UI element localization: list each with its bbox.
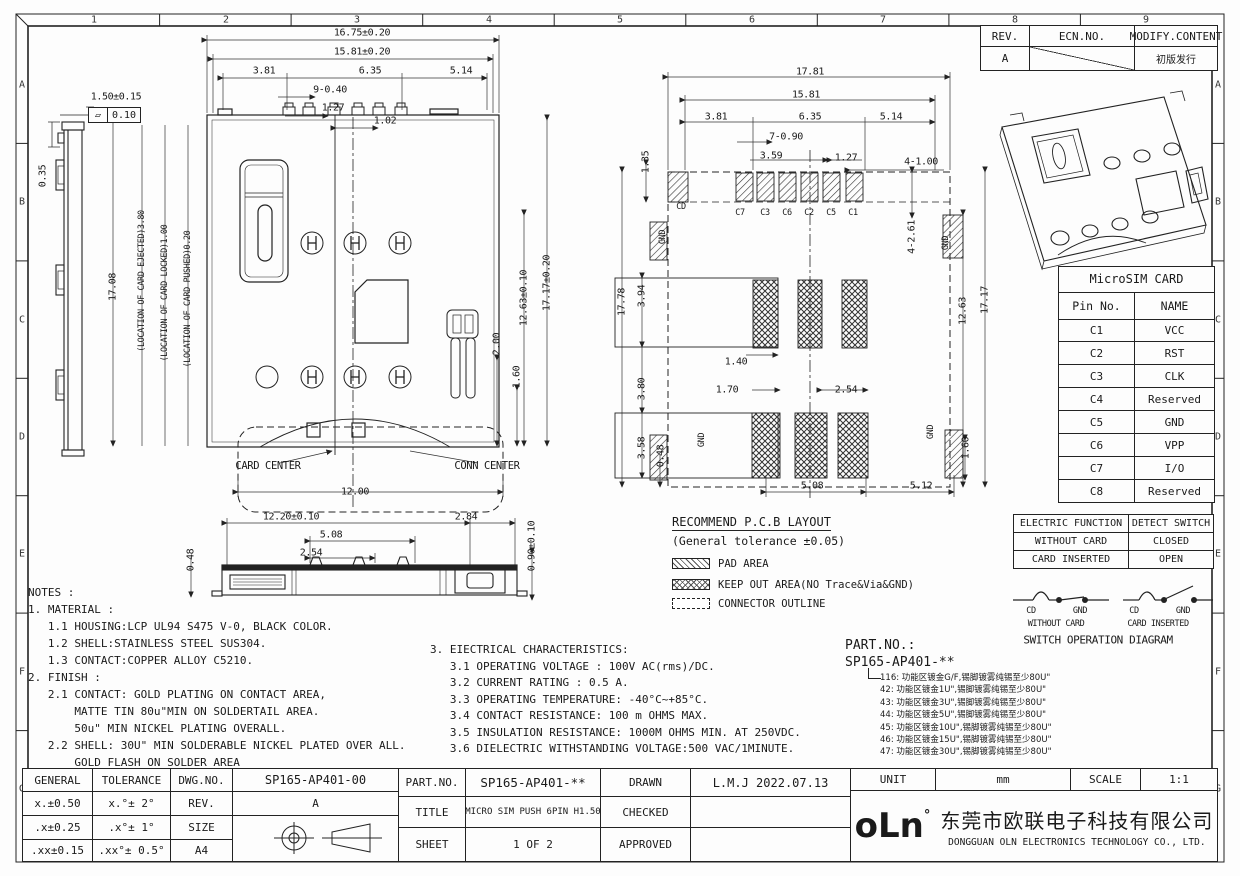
frame-row-label: F	[19, 667, 25, 678]
tb-tolerance-header: TOLERANCE	[92, 768, 171, 792]
dim-pcb-508: 5.08	[801, 481, 823, 492]
plating-option: 45: 功能区镀金10U",锡脚镀雾纯锡至少80U"	[880, 722, 1051, 734]
dim-pcb-1581: 15.81	[792, 90, 820, 101]
note-line: 1.1 HOUSING:LCP UL94 S475 V-0, BLACK COL…	[28, 618, 406, 635]
frame-col-label: 6	[749, 15, 755, 26]
dim-pcb-512: 5.12	[910, 481, 932, 492]
pad-area-label: PAD AREA	[718, 558, 769, 570]
dim-pcb-160: 1.60	[961, 437, 972, 459]
pad-label-c5: C5	[826, 208, 835, 218]
dim-pin-width: 9-0.40	[313, 85, 347, 96]
note-line: NOTES :	[28, 584, 406, 601]
notes-block: NOTES : 1. MATERIAL : 1.1 HOUSING:LCP UL…	[28, 584, 406, 771]
dim-pcb-140: 1.40	[725, 357, 747, 368]
pcb-layout-title: RECOMMEND P.C.B LAYOUT	[672, 515, 831, 531]
tb-title-value: MICRO SIM PUSH 6PIN H1.50	[465, 796, 601, 828]
name-cell: Reserved	[1135, 480, 1214, 502]
tb-scale-label: SCALE	[1070, 768, 1141, 791]
dim-1220: 12.20±0.10	[263, 512, 319, 523]
name-cell: VCC	[1135, 320, 1214, 342]
electric-function-header: ELECTRIC FUNCTION	[1013, 514, 1129, 533]
name-cell: GND	[1135, 411, 1214, 433]
frame-row-label: C	[19, 315, 25, 326]
engineering-drawing-page: 1 2 3 4 5 6 7 8 9 1 2 3 4 5 6 7 8 9 A B …	[0, 0, 1240, 876]
frame-row-label: E	[19, 549, 25, 560]
note-line: 1.3 CONTACT:COPPER ALLOY C5210.	[28, 652, 406, 669]
connector-outline-swatch	[672, 598, 710, 609]
tb-sheet-value: 1 OF 2	[465, 827, 601, 862]
frame-col-label: 7	[880, 15, 886, 26]
oln-logo: oLn°	[855, 809, 931, 843]
pad-label-gnd-bottomright: GND	[926, 425, 936, 439]
switch-card-inserted-label: CARD INSERTED	[1127, 619, 1188, 629]
electrical-line: 3.5 INSULATION RESISTANCE: 1000M OHMS MI…	[430, 725, 801, 742]
dim-508-bottom: 5.08	[320, 530, 342, 541]
dim-127: 1.27	[322, 103, 344, 114]
pin-cell: C2	[1059, 342, 1135, 364]
without-card-cell: WITHOUT CARD	[1013, 532, 1129, 551]
pad-label-c6: C6	[782, 208, 791, 218]
revision-ecn-diagonal	[1029, 46, 1135, 71]
frame-row-label: C	[1215, 315, 1221, 326]
electrical-characteristics-block: 3. EIECTRICAL CHARACTERISTICS: 3.1 OPERA…	[430, 642, 801, 758]
plating-option: 43: 功能区镀金3U",锡脚镀雾纯锡至少80U"	[880, 697, 1051, 709]
tb-dwgno-value: SP165-AP401-00	[232, 768, 399, 792]
dim-048-bottom: 0.48	[186, 549, 197, 571]
table-row: C5GND	[1059, 411, 1214, 434]
tb-general-header: GENERAL	[22, 768, 93, 792]
electrical-line: 3.2 CURRENT RATING : 0.5 A.	[430, 675, 801, 692]
dim-pitch-635: 6.35	[359, 66, 381, 77]
table-row: C2RST	[1059, 342, 1214, 365]
revision-header-rev: REV.	[980, 25, 1030, 47]
tb-dwgno-label: DWG.NO.	[170, 768, 233, 792]
dim-102: 1.02	[374, 116, 396, 127]
closed-cell: CLOSED	[1128, 532, 1214, 551]
dim-pcb-170: 1.70	[716, 385, 738, 396]
tb-projection-cell	[232, 815, 399, 862]
frame-col-label: 8	[1012, 15, 1018, 26]
dim-shell-width: 15.81±0.20	[334, 47, 390, 58]
pin-cell: C3	[1059, 365, 1135, 387]
note-line: 2.2 SHELL: 30U" MIN SOLDERABLE NICKEL PL…	[28, 737, 406, 754]
frame-row-label: B	[19, 197, 25, 208]
frame-row-label: A	[19, 80, 25, 91]
dim-pcb-048: 0.48	[656, 445, 667, 467]
pad-label-c7: C7	[735, 208, 744, 218]
company-name-en: DONGGUAN OLN ELECTRONICS TECHNOLOGY CO.,…	[948, 837, 1205, 848]
pin-cell: C8	[1059, 480, 1135, 502]
logo-degree-mark: °	[924, 808, 931, 823]
plating-option: 42: 功能区镀金1U",锡脚镀雾纯锡至少80U"	[880, 684, 1051, 696]
dim-pcb-359: 3.59	[760, 151, 782, 162]
pin-cell: C7	[1059, 457, 1135, 479]
microsim-pin-table: MicroSIM CARD Pin No. NAME C1VCC C2RST C…	[1058, 266, 1215, 503]
keepout-area-swatch	[672, 579, 710, 590]
switch-gnd2-label: GND	[1176, 606, 1190, 616]
pad-area-swatch	[672, 558, 710, 569]
frame-col-label: 9	[1143, 15, 1149, 26]
note-line: 50u" MIN NICKEL PLATING OVERALL.	[28, 720, 406, 737]
pad-label-gnd-topleft: GND	[658, 230, 668, 244]
dim-pcb-135: 1.35	[641, 151, 652, 173]
tb-company-cell: oLn° 东莞市欧联电子科技有限公司 DONGGUAN OLN ELECTRON…	[850, 790, 1218, 862]
tb-approved-label: APPROVED	[600, 827, 691, 862]
pad-label-gnd-topright: GND	[941, 236, 951, 250]
pad-label-gnd-bottomleft: GND	[697, 433, 707, 447]
plating-option: 44: 功能区镀金5U",锡脚镀雾纯锡至少80U"	[880, 709, 1051, 721]
frame-row-label: D	[19, 432, 25, 443]
switch-cd2-label: CD	[1129, 606, 1138, 616]
dim-pitch-381: 3.81	[253, 66, 275, 77]
dim-pcb-1778: 17.78	[617, 288, 628, 316]
open-cell: OPEN	[1128, 550, 1214, 569]
pad-label-c1: C1	[848, 208, 857, 218]
card-center-label: CARD CENTER	[235, 460, 300, 472]
conn-center-label: CONN CENTER	[454, 460, 519, 472]
dim-pcb-127: 1.27	[835, 153, 857, 164]
table-row: C8Reserved	[1059, 480, 1214, 502]
flatness-symbol: ▱	[88, 107, 108, 123]
dim-1708: 17.08	[108, 273, 119, 301]
tb-size-value: A4	[170, 839, 233, 862]
dim-200: 2.00	[492, 333, 503, 355]
dim-location-ejected: (LOCATION OF CARD EJECTED)3.80	[137, 210, 147, 352]
note-line: 2.1 CONTACT: GOLD PLATING ON CONTACT ARE…	[28, 686, 406, 703]
dim-height-150: 1.50±0.15	[91, 92, 142, 103]
tb-title-label: TITLE	[398, 796, 466, 828]
pad-label-cd: CD	[676, 202, 685, 212]
dim-location-pushed: (LOCATION OF CARD PUSHED)0.20	[183, 231, 193, 368]
tb-tol-r2c2: .x°± 1°	[92, 815, 171, 840]
dim-pcb-1717: 17.17	[980, 286, 991, 314]
revision-header-ecn: ECN.NO.	[1029, 25, 1135, 47]
frame-row-label: D	[1215, 432, 1221, 443]
tb-tol-r1c1: x.±0.50	[22, 791, 93, 816]
tb-unit-label: UNIT	[850, 768, 936, 791]
dim-090: 0.90±0.10	[527, 521, 538, 572]
note-line: 1.2 SHELL:STAINLESS STEEL SUS304.	[28, 635, 406, 652]
tb-partno-value: SP165-AP401-**	[465, 768, 601, 797]
tb-drawn-label: DRAWN	[600, 768, 691, 797]
plating-option: 46: 功能区镀金15U",锡脚镀雾纯锡至少80U"	[880, 734, 1051, 746]
dim-1200: 12.00	[341, 487, 369, 498]
frame-col-label: 5	[617, 15, 623, 26]
note-line: MATTE TIN 80u"MIN ON SOLDERTAIL AREA.	[28, 703, 406, 720]
pad-label-c3: C3	[760, 208, 769, 218]
dim-035: 0.35	[38, 165, 49, 187]
table-row: C3CLK	[1059, 365, 1214, 388]
name-cell: I/O	[1135, 457, 1214, 479]
tb-scale-value: 1:1	[1140, 768, 1218, 791]
tb-tol-r2c1: .x±0.25	[22, 815, 93, 840]
dim-pcb-4-100: 4-1.00	[904, 157, 938, 168]
table-row: C4Reserved	[1059, 388, 1214, 411]
dim-pcb-514: 5.14	[880, 112, 902, 123]
electrical-line: 3. EIECTRICAL CHARACTERISTICS:	[430, 642, 801, 659]
pad-label-c2: C2	[804, 208, 813, 218]
tb-approved-value	[690, 827, 851, 862]
tb-rev-label: REV.	[170, 791, 233, 816]
switch-without-card-label: WITHOUT CARD	[1028, 619, 1085, 629]
dim-overall-width: 16.75±0.20	[334, 28, 390, 39]
dim-pcb-1781: 17.81	[796, 67, 824, 78]
keepout-area-label: KEEP OUT AREA(NO Trace&Via&GND)	[718, 579, 914, 591]
dim-pcb-254: 2.54	[835, 385, 857, 396]
side-view-drawing	[46, 105, 98, 470]
table-row: C6VPP	[1059, 434, 1214, 457]
isometric-view-drawing	[940, 75, 1230, 275]
table-row: C7I/O	[1059, 457, 1214, 480]
name-cell: Reserved	[1135, 388, 1214, 410]
dim-pcb-380: 3.80	[637, 378, 648, 400]
dim-pcb-394: 3.94	[637, 285, 648, 307]
electrical-line: 3.6 DIELECTRIC WITHSTANDING VOLTAGE:500 …	[430, 741, 801, 758]
frame-col-label: 4	[486, 15, 492, 26]
frame-col-label: 2	[223, 15, 229, 26]
microsim-col-name: NAME	[1135, 293, 1214, 319]
tb-partno-label: PART.NO.	[398, 768, 466, 797]
tb-tol-r3c1: .xx±0.15	[22, 839, 93, 862]
dim-pcb-381: 3.81	[705, 112, 727, 123]
tb-drawn-value: L.M.J 2022.07.13	[690, 768, 851, 797]
dim-pcb-4-261: 4-2.61	[907, 220, 918, 254]
name-cell: RST	[1135, 342, 1214, 364]
plating-option: 47: 功能区镀金30U",锡脚镀雾纯锡至少80U"	[880, 746, 1051, 758]
note-line: 2. FINISH :	[28, 669, 406, 686]
electrical-line: 3.3 OPERATING TEMPERATURE: -40°C~+85°C.	[430, 692, 801, 709]
tb-unit-value: mm	[935, 768, 1071, 791]
pin-cell: C1	[1059, 320, 1135, 342]
dim-160: 1.60	[512, 366, 523, 388]
part-no-label: PART.NO.:	[845, 638, 915, 653]
revision-header-modify: MODIFY.CONTENT	[1134, 25, 1218, 47]
tb-size-label: SIZE	[170, 815, 233, 840]
pin-cell: C5	[1059, 411, 1135, 433]
card-inserted-cell: CARD INSERTED	[1013, 550, 1129, 569]
connector-outline-label: CONNECTOR OUTLINE	[718, 598, 825, 610]
tb-sheet-label: SHEET	[398, 827, 466, 862]
flatness-value: 0.10	[107, 107, 141, 123]
third-angle-projection-icon	[236, 816, 396, 861]
frame-row-label: E	[1215, 549, 1221, 560]
tb-tol-r1c2: x.°± 2°	[92, 791, 171, 816]
dim-pcb-pin: 7-0.90	[769, 132, 803, 143]
plating-options-list: 116: 功能区镀金G/F,锡脚镀雾纯锡至少80U" 42: 功能区镀金1U",…	[880, 672, 1051, 759]
tb-tol-r3c2: .xx°± 0.5°	[92, 839, 171, 862]
pin-cell: C4	[1059, 388, 1135, 410]
electrical-line: 3.1 OPERATING VOLTAGE : 100V AC(rms)/DC.	[430, 659, 801, 676]
dim-pitch-514: 5.14	[450, 66, 472, 77]
switch-gnd1-label: GND	[1073, 606, 1087, 616]
dim-284: 2.84	[455, 512, 477, 523]
plating-option: 116: 功能区镀金G/F,锡脚镀雾纯锡至少80U"	[880, 672, 1051, 684]
frame-row-label: F	[1215, 667, 1221, 678]
tb-checked-value	[690, 796, 851, 828]
dim-254-bottom: 2.54	[300, 548, 322, 559]
electrical-line: 3.4 CONTACT RESISTANCE: 100 m OHMS MAX.	[430, 708, 801, 725]
tb-checked-label: CHECKED	[600, 796, 691, 828]
company-name-cn: 东莞市欧联电子科技有限公司	[940, 805, 1213, 834]
microsim-col-pin: Pin No.	[1059, 293, 1135, 319]
microsim-table-title: MicroSIM CARD	[1059, 267, 1214, 293]
dim-pcb-358: 3.58	[637, 437, 648, 459]
note-line: 1. MATERIAL :	[28, 601, 406, 618]
dim-pcb-635: 6.35	[799, 112, 821, 123]
revision-value-modify: 初版发行	[1134, 46, 1218, 71]
tb-rev-value: A	[232, 791, 399, 816]
frame-col-label: 1	[91, 15, 97, 26]
switch-cd1-label: CD	[1026, 606, 1035, 616]
name-cell: VPP	[1135, 434, 1214, 456]
detect-switch-header: DETECT SWITCH	[1128, 514, 1214, 533]
dim-location-locked: (LOCATION OF CARD LOCKED)1.00	[160, 225, 170, 362]
dim-pcb-1263: 12.63	[958, 297, 969, 325]
name-cell: CLK	[1135, 365, 1214, 387]
dim-1717: 17.17±0.20	[542, 255, 553, 311]
pcb-layout-subtitle: (General tolerance ±0.05)	[672, 534, 845, 548]
table-row: C1VCC	[1059, 320, 1214, 343]
switch-diagram-title: SWITCH OPERATION DIAGRAM	[1023, 634, 1172, 647]
dim-1263: 12.63±0.10	[519, 270, 530, 326]
pin-cell: C6	[1059, 434, 1135, 456]
frame-col-label: 3	[354, 15, 360, 26]
part-no-value: SP165-AP401-**	[845, 655, 955, 670]
